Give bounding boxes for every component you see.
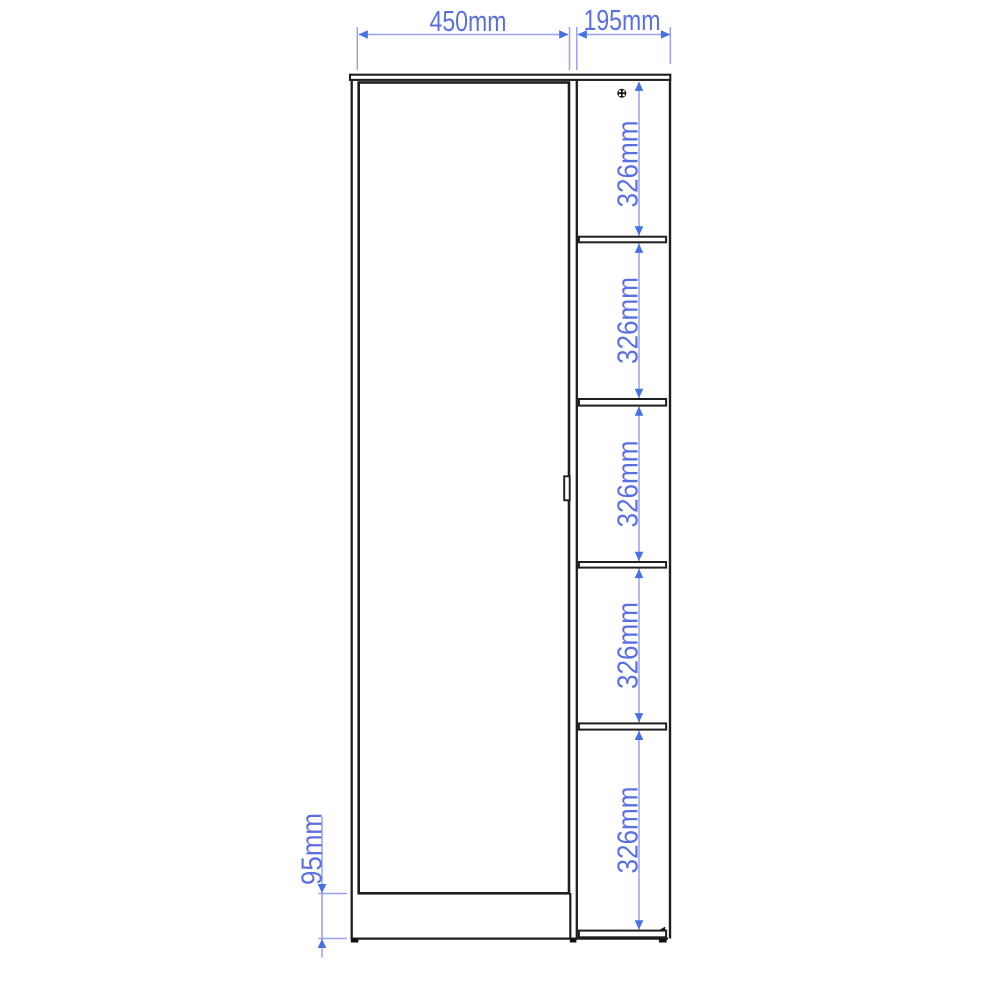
svg-text:450mm: 450mm — [430, 6, 507, 38]
svg-text:326mm: 326mm — [613, 277, 645, 364]
svg-text:95mm: 95mm — [297, 813, 329, 885]
svg-text:195mm: 195mm — [584, 5, 661, 37]
svg-text:326mm: 326mm — [613, 121, 645, 208]
svg-text:326mm: 326mm — [613, 787, 645, 874]
svg-text:326mm: 326mm — [613, 441, 645, 528]
svg-text:326mm: 326mm — [613, 602, 645, 689]
